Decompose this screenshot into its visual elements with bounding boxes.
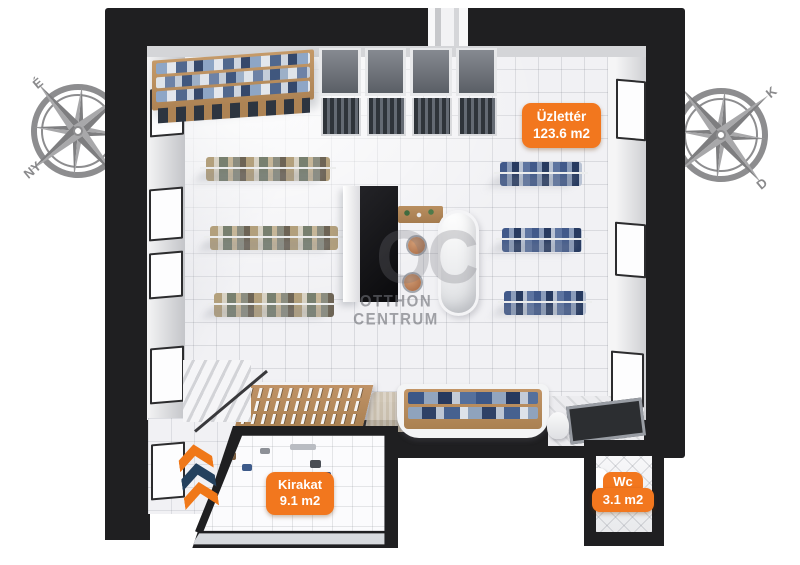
- clothing-rail: [500, 162, 582, 186]
- window: [150, 346, 184, 405]
- product-row: [244, 401, 364, 411]
- window: [615, 222, 646, 279]
- garment-rack: [367, 98, 407, 136]
- room-label-shop: Üzlettér 123.6 m2: [522, 103, 601, 148]
- clothing-rail: [206, 157, 330, 181]
- room-area: 3.1 m2: [592, 488, 654, 512]
- outer-wall-left-extension: [105, 450, 150, 540]
- jeans-display-tiers: [404, 389, 542, 429]
- dark-garment-racks: [321, 98, 497, 136]
- room-area: 123.6 m2: [522, 125, 601, 142]
- product-row: [241, 414, 361, 424]
- clothing-rail: [210, 226, 338, 250]
- floorplan-image: É NY K D: [0, 0, 800, 565]
- product-display-table: [234, 382, 374, 431]
- window: [149, 187, 183, 242]
- display-item: [290, 444, 316, 450]
- window: [149, 251, 183, 300]
- room-label-window-display: Kirakat 9.1 m2: [266, 472, 334, 515]
- armchair: [547, 412, 569, 439]
- room-name: Üzlettér: [522, 108, 601, 125]
- watermark-line1: OTTHON: [360, 292, 432, 311]
- clothing-rail: [502, 228, 582, 252]
- display-item: [260, 448, 270, 454]
- garment-rack: [321, 98, 361, 136]
- fitting-room-stall: [456, 48, 498, 96]
- garment-rack: [412, 98, 452, 136]
- room-name: Kirakat: [266, 477, 334, 493]
- fitting-rooms: [319, 48, 497, 96]
- watermark-text: OTTHON CENTRUM: [336, 293, 456, 329]
- top-entrance: [428, 8, 468, 46]
- room-label-toilet: Wc 3.1 m2: [592, 472, 654, 512]
- window: [616, 79, 646, 142]
- room-area: 9.1 m2: [266, 493, 334, 509]
- jeans-display-table: [397, 384, 549, 438]
- product-row: [247, 388, 367, 398]
- jeans-row: [408, 392, 538, 404]
- display-item: [224, 452, 236, 460]
- watermark-monogram: OC: [376, 220, 474, 296]
- fitting-room-stall: [319, 48, 361, 96]
- display-item: [242, 464, 252, 471]
- jeans-row: [408, 407, 538, 419]
- fitting-room-stall: [410, 48, 452, 96]
- clothing-rail: [214, 293, 334, 317]
- watermark-line2: CENTRUM: [353, 310, 439, 329]
- garment-rack: [458, 98, 498, 136]
- clothing-rail: [504, 291, 586, 315]
- display-item: [310, 460, 321, 468]
- counter-side-panel: [343, 186, 360, 302]
- fitting-room-stall: [365, 48, 407, 96]
